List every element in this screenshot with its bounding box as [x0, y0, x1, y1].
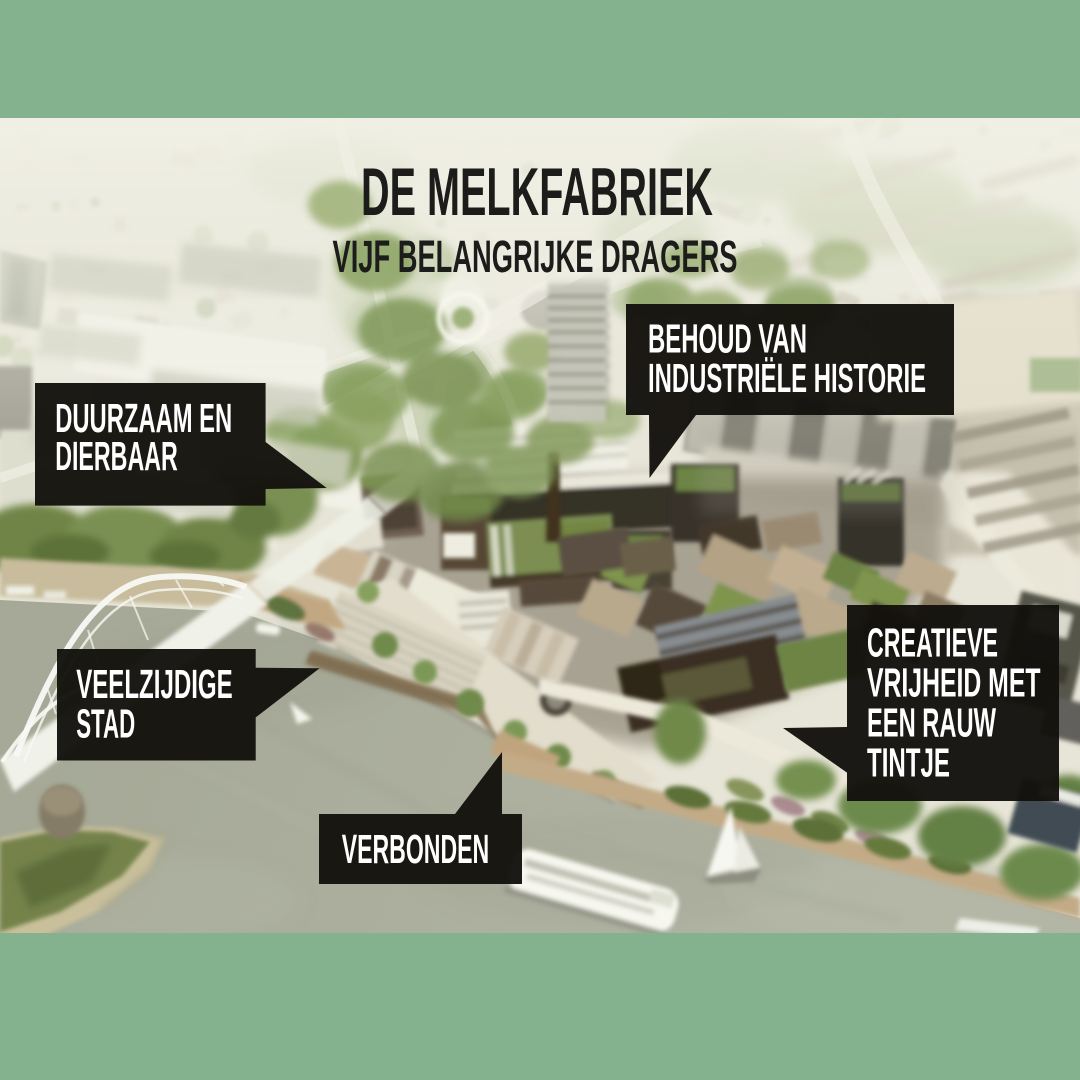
svg-text:TINTJE: TINTJE: [867, 740, 950, 786]
svg-text:DIERBAAR: DIERBAAR: [55, 433, 178, 479]
svg-text:VIJF BELANGRIJKE DRAGERS: VIJF BELANGRIJKE DRAGERS: [333, 231, 738, 282]
svg-text:INDUSTRIËLE HISTORIE: INDUSTRIËLE HISTORIE: [648, 355, 926, 401]
svg-text:VERBONDEN: VERBONDEN: [342, 826, 490, 872]
svg-text:STAD: STAD: [76, 701, 135, 747]
svg-text:DE MELKFABRIEK: DE MELKFABRIEK: [361, 155, 713, 230]
